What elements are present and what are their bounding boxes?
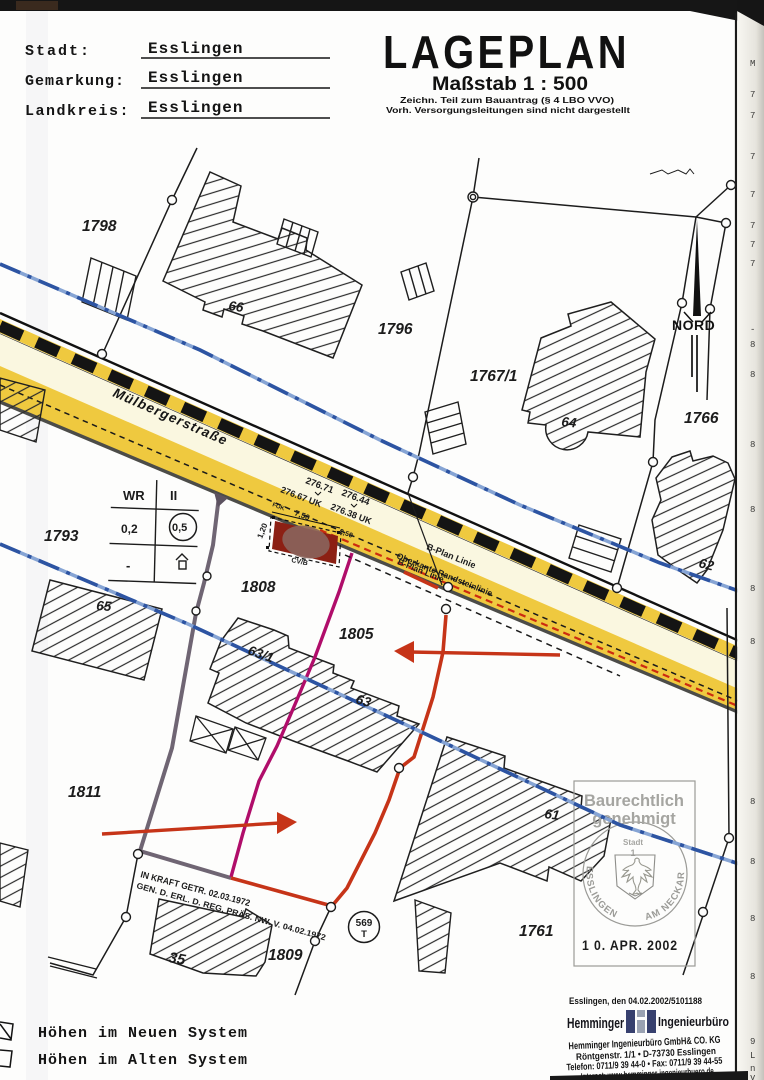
svg-text:-: - xyxy=(750,325,755,335)
svg-text:1809: 1809 xyxy=(268,947,303,964)
svg-text:M: M xyxy=(750,59,755,69)
svg-text:WR: WR xyxy=(123,488,145,503)
svg-text:9: 9 xyxy=(750,1037,755,1047)
svg-text:Esslingen: Esslingen xyxy=(148,99,243,117)
svg-text:Stadt:: Stadt: xyxy=(25,43,91,60)
svg-text:1793: 1793 xyxy=(44,528,79,545)
svg-text:8: 8 xyxy=(750,637,755,647)
svg-text:Gemarkung:: Gemarkung: xyxy=(25,73,125,90)
svg-text:569: 569 xyxy=(356,918,373,929)
svg-text:8: 8 xyxy=(750,370,755,380)
svg-text:1798: 1798 xyxy=(82,218,117,235)
svg-text:1805: 1805 xyxy=(339,626,374,643)
svg-text:7: 7 xyxy=(750,221,755,231)
svg-text:8: 8 xyxy=(750,914,755,924)
svg-text:8: 8 xyxy=(750,340,755,350)
svg-text:Ingenieurbüro: Ingenieurbüro xyxy=(658,1014,729,1029)
svg-text:7: 7 xyxy=(750,90,755,100)
svg-text:0,2: 0,2 xyxy=(121,522,138,536)
svg-text:64: 64 xyxy=(561,414,578,431)
svg-text:7: 7 xyxy=(750,240,755,250)
svg-text:1 0. APR. 2002: 1 0. APR. 2002 xyxy=(582,938,678,953)
svg-text:0,5: 0,5 xyxy=(172,522,187,534)
svg-text:1808: 1808 xyxy=(241,579,276,596)
svg-text:Vorh. Versorgungsleitungen sin: Vorh. Versorgungsleitungen sind nicht da… xyxy=(386,105,630,115)
svg-text:7: 7 xyxy=(750,259,755,269)
svg-text:66: 66 xyxy=(228,298,245,315)
svg-text:8: 8 xyxy=(750,584,755,594)
svg-text:L: L xyxy=(750,1051,755,1061)
svg-text:1811: 1811 xyxy=(68,784,101,801)
svg-text:Landkreis:: Landkreis: xyxy=(25,103,130,120)
svg-text:Hemminger: Hemminger xyxy=(567,1015,624,1032)
svg-text:1796: 1796 xyxy=(378,321,413,338)
svg-text:1767/1: 1767/1 xyxy=(470,368,517,385)
svg-text:v: v xyxy=(750,1073,756,1080)
svg-text:8: 8 xyxy=(750,505,755,515)
svg-text:Esslingen: Esslingen xyxy=(148,40,243,58)
svg-text:Stadt: Stadt xyxy=(623,838,643,847)
svg-text:7: 7 xyxy=(750,111,755,121)
svg-text:Baurechtlich: Baurechtlich xyxy=(584,792,684,810)
svg-text:Höhen im Alten System: Höhen im Alten System xyxy=(38,1052,248,1069)
svg-text:NORD: NORD xyxy=(672,317,715,333)
svg-text:Zeichn. Teil zum Bauantrag (§: Zeichn. Teil zum Bauantrag (§ 4 LBO VVO) xyxy=(400,95,614,105)
svg-text:65: 65 xyxy=(96,598,113,614)
svg-text:7: 7 xyxy=(750,190,755,200)
svg-text:8: 8 xyxy=(750,972,755,982)
svg-text:Maßstab 1 : 500: Maßstab 1 : 500 xyxy=(432,74,588,95)
svg-text:8: 8 xyxy=(750,440,755,450)
svg-text:8: 8 xyxy=(750,797,755,807)
svg-text:-: - xyxy=(126,558,130,573)
svg-text:LAGEPLAN: LAGEPLAN xyxy=(383,26,630,78)
svg-text:61: 61 xyxy=(544,806,561,823)
svg-text:II: II xyxy=(170,488,177,503)
svg-text:1766: 1766 xyxy=(684,410,719,427)
svg-text:T: T xyxy=(361,929,367,940)
svg-text:1: 1 xyxy=(630,848,635,858)
svg-text:Esslingen, den 04.02.2002/5101: Esslingen, den 04.02.2002/5101188 xyxy=(569,996,702,1006)
svg-text:7: 7 xyxy=(750,152,755,162)
svg-text:1761: 1761 xyxy=(519,923,553,940)
svg-text:8: 8 xyxy=(750,857,755,867)
svg-text:Esslingen: Esslingen xyxy=(148,69,243,87)
svg-text:Höhen im Neuen System: Höhen im Neuen System xyxy=(38,1025,248,1042)
